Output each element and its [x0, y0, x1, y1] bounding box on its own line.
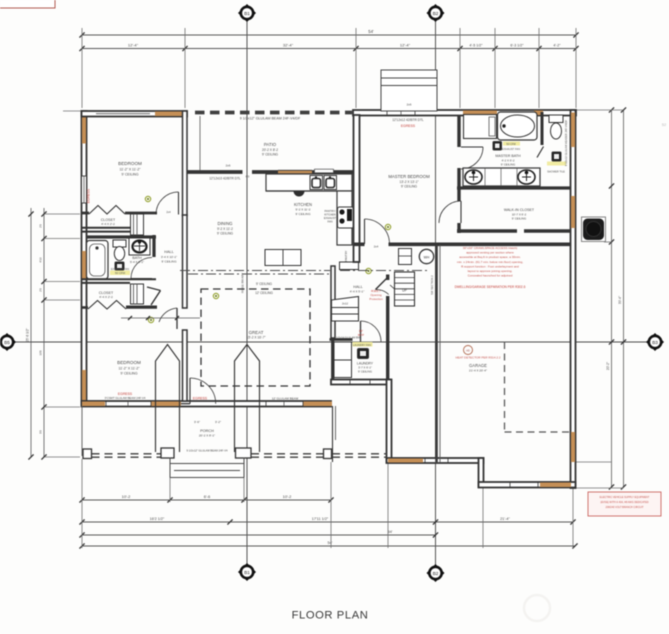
svg-text:B2: B2 [433, 571, 439, 576]
svg-text:HD: HD [466, 349, 470, 353]
svg-text:FLOOR PLAN: FLOOR PLAN [292, 610, 369, 622]
svg-text:12'-4": 12'-4" [128, 43, 139, 48]
svg-text:9' CEILING: 9' CEILING [121, 173, 138, 177]
svg-text:FAN: FAN [327, 220, 332, 224]
svg-text:9' CEILING: 9' CEILING [512, 217, 527, 221]
svg-text:5'0: 5'0 [39, 430, 43, 434]
svg-text:BEDROOM: BEDROOM [118, 161, 142, 166]
svg-text:BYP: BYP [358, 333, 364, 337]
svg-text:DINING: DINING [217, 221, 233, 226]
svg-text:21'-4 X 20'-4": 21'-4 X 20'-4" [469, 369, 487, 373]
svg-text:EXHAUST FAN: EXHAUST FAN [502, 147, 520, 151]
svg-text:10'-2: 10'-2 [122, 494, 132, 499]
svg-text:MASTER BATH: MASTER BATH [495, 154, 521, 158]
svg-text:20'-2 X 8'-1": 20'-2 X 8'-1" [199, 434, 215, 438]
svg-text:UP: UP [402, 289, 407, 293]
svg-text:11'-2" X 11'-2": 11'-2" X 11'-2" [120, 168, 142, 172]
svg-text:B3: B3 [652, 340, 658, 345]
svg-text:R.support function : Foot und: R.support function : Foot underlayment a… [461, 264, 519, 268]
svg-text:54': 54' [328, 541, 333, 545]
svg-text:B1: B1 [244, 11, 250, 16]
svg-text:9 1/2x12" GLULAM BEAM 24F-V4/D: 9 1/2x12" GLULAM BEAM 24F-V4/DF [240, 117, 301, 121]
svg-text:10'-2: 10'-2 [283, 494, 293, 499]
svg-text:12' CEILING: 12' CEILING [255, 291, 273, 295]
svg-text:9' CEILING: 9' CEILING [217, 232, 234, 236]
svg-text:17'11 1/2": 17'11 1/2" [312, 517, 329, 521]
svg-text:20'-2 X 8'-2: 20'-2 X 8'-2 [262, 148, 278, 152]
svg-text:min. x 24min. (61.7 min. below: min. x 24min. (61.7 min. below min.floor… [457, 260, 524, 264]
svg-text:ELECTRIC VEHICLE SUPPLY EQUIPM: ELECTRIC VEHICLE SUPPLY EQUIPMENT [600, 496, 650, 499]
svg-text:52: 52 [662, 122, 667, 127]
svg-text:4'10: 4'10 [39, 257, 43, 263]
svg-text:6'-6: 6'-6 [204, 494, 211, 499]
svg-text:30"x30" CRAWLSPACE ACCESS Hatc: 30"x30" CRAWLSPACE ACCESS Hatch) [463, 246, 517, 250]
svg-text:PANTRY/: PANTRY/ [324, 209, 335, 213]
svg-text:EXHAUST FAN: EXHAUST FAN [111, 267, 129, 271]
svg-text:9' CEILING: 9' CEILING [262, 153, 279, 157]
svg-text:6'0: 6'0 [246, 175, 250, 179]
svg-text:11'-2" X 11'-2": 11'-2" X 11'-2" [119, 367, 141, 371]
svg-text:15'-2 X 16'-7": 15'-2 X 16'-7" [246, 336, 265, 340]
svg-text:9' CEILING: 9' CEILING [401, 185, 418, 189]
svg-text:50 CFM: 50 CFM [506, 142, 515, 146]
svg-text:2'0: 2'0 [39, 224, 43, 228]
svg-text:9' CEILING: 9' CEILING [358, 370, 372, 374]
svg-text:5/8 SECTION 2: 5/8 SECTION 2 [430, 275, 434, 295]
svg-text:13'-2 X 13'-1": 13'-2 X 13'-1" [399, 180, 418, 184]
svg-text:12'-4": 12'-4" [400, 43, 411, 48]
svg-text:2x4: 2x4 [374, 245, 379, 249]
svg-text:PATIO: PATIO [264, 142, 277, 147]
svg-text:2'0: 2'0 [39, 288, 43, 292]
svg-text:B2: B2 [433, 11, 439, 16]
svg-text:16'2 1/2": 16'2 1/2" [150, 517, 165, 521]
svg-text:50 CFM: 50 CFM [115, 271, 126, 275]
svg-text:12'12x12 42/BTR DTL: 12'12x12 42/BTR DTL [392, 118, 424, 122]
svg-text:LAUNDRY FAN: LAUNDRY FAN [353, 343, 371, 347]
svg-text:WH: WH [424, 255, 430, 259]
svg-text:25'-6 1/2": 25'-6 1/2" [26, 328, 30, 341]
svg-text:PANTRY: PANTRY [344, 250, 348, 261]
svg-text:GREAT: GREAT [249, 330, 264, 335]
svg-text:9'-2 X 11'-2: 9'-2 X 11'-2 [217, 227, 233, 231]
svg-text:HEAT DETECTOR PER R314.2.2: HEAT DETECTOR PER R314.2.2 [455, 356, 500, 360]
svg-text:DWELLING/GARAGE SEPARATION PER: DWELLING/GARAGE SEPARATION PER R302.6 [455, 285, 526, 289]
svg-text:9'-2 X 11'-2: 9'-2 X 11'-2 [296, 208, 311, 212]
svg-text:4'-4 X 2'-2: 4'-4 X 2'-2 [101, 222, 115, 226]
svg-text:2x12: 2x12 [342, 302, 349, 306]
svg-text:4'-5 1/2": 4'-5 1/2" [469, 44, 483, 48]
svg-text:9' CEILING: 9' CEILING [161, 260, 177, 264]
svg-text:EXHAUST: EXHAUST [324, 216, 337, 220]
svg-text:EGRESS: EGRESS [87, 188, 91, 203]
svg-text:Concealed haunched for adjoi: Concealed haunched for adjoined [468, 274, 513, 278]
svg-text:9 1/2x12 GLULAM HEADER 24F-V4/: 9 1/2x12 GLULAM HEADER 24F-V4/DF [564, 119, 568, 166]
svg-text:10'8: 10'8 [39, 350, 43, 356]
svg-text:54': 54' [368, 29, 374, 34]
svg-text:WALK-IN CLOSET: WALK-IN CLOSET [504, 208, 535, 212]
svg-text:BEDROOM: BEDROOM [117, 360, 141, 365]
svg-text:PORCH: PORCH [200, 429, 214, 433]
svg-text:HALL: HALL [353, 285, 363, 289]
svg-text:6'-3 1/2": 6'-3 1/2" [510, 44, 524, 48]
svg-text:EGRESS: EGRESS [401, 124, 416, 128]
svg-text:B1: B1 [244, 570, 250, 575]
svg-text:3'-6": 3'-6" [194, 420, 200, 424]
svg-text:accessible at 8sq.ft in produc: accessible at 8sq.ft in product space; a… [459, 255, 521, 259]
svg-text:Protection: Protection [369, 297, 383, 301]
svg-text:B5: B5 [4, 340, 10, 345]
svg-text:4'-4 X 2'-2: 4'-4 X 2'-2 [99, 295, 113, 299]
svg-text:12'12x10 42/BTR DTL: 12'12x10 42/BTR DTL [209, 177, 241, 181]
svg-text:GARAGE: GARAGE [469, 363, 487, 368]
svg-text:20'-2": 20'-2" [606, 362, 610, 370]
svg-text:9' CEILING: 9' CEILING [120, 372, 137, 376]
svg-text:RIDGE BM ABV: RIDGE BM ABV [241, 273, 245, 293]
svg-text:21'-4": 21'-4" [500, 517, 510, 521]
svg-text:HALL: HALL [164, 250, 174, 254]
svg-text:9 1/2x12" GLULAM BEAM 24F-V4: 9 1/2x12" GLULAM BEAM 24F-V4 [187, 448, 228, 452]
svg-text:4'-4 X 5'-1": 4'-4 X 5'-1" [350, 290, 365, 294]
svg-text:12' GLULAM BEAM: 12' GLULAM BEAM [272, 397, 299, 401]
svg-text:9' CEILING: 9' CEILING [256, 282, 273, 286]
svg-text:39'-4": 39'-4" [618, 296, 622, 304]
svg-text:3'-4 X 10'-1": 3'-4 X 10'-1" [161, 255, 177, 259]
svg-text:3'CSMT GLULAM BEAM 24F-V4: 3'CSMT GLULAM BEAM 24F-V4 [105, 396, 146, 400]
svg-text:SHOWER TILE: SHOWER TILE [547, 170, 565, 174]
svg-text:3 1/2x14 GLULAM BM: 3 1/2x14 GLULAM BM [334, 335, 360, 339]
svg-text:9' CEILING: 9' CEILING [501, 163, 516, 167]
svg-text:4'-2": 4'-2" [553, 44, 561, 48]
svg-text:9' CEILING: 9' CEILING [295, 212, 311, 216]
svg-text:(EVSE) WITH A 40A, #8 AWG DEDI: (EVSE) WITH A 40A, #8 AWG DEDICATED [600, 501, 648, 504]
svg-text:32'-4": 32'-4" [283, 43, 294, 48]
svg-text:2x4: 2x4 [166, 210, 171, 214]
svg-text:KITCHEN: KITCHEN [324, 213, 336, 217]
svg-text:2x6: 2x6 [226, 164, 231, 168]
svg-text:approved venting per section w: approved venting per section where [466, 251, 514, 255]
svg-text:3'-2": 3'-2" [215, 420, 221, 424]
svg-text:208/240 VOLT BRANCH CIRCUIT: 208/240 VOLT BRANCH CIRCUIT [605, 506, 644, 509]
svg-text:2x6: 2x6 [407, 103, 412, 107]
svg-text:MASTER BEDROOM: MASTER BEDROOM [388, 174, 430, 179]
svg-text:KITCHEN: KITCHEN [294, 202, 312, 207]
svg-text:EGRESS: EGRESS [193, 397, 208, 401]
svg-text:layout to approve joining o: layout to approve joining opening. [468, 269, 513, 273]
